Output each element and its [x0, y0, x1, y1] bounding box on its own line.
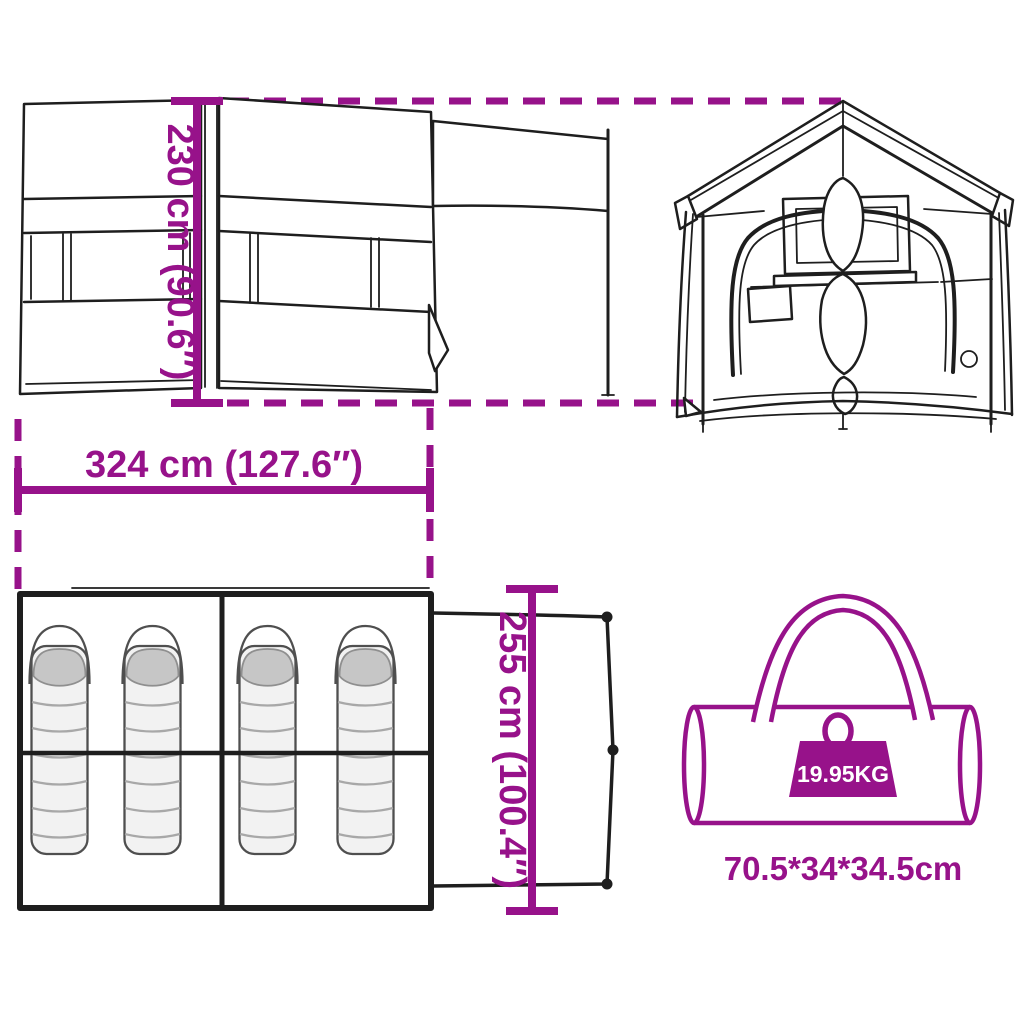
package-size-label: 70.5*34*34.5cm [724, 850, 963, 887]
height-dimension: 230 cm (90.6″) [159, 101, 223, 403]
weight-icon: 19.95KG [789, 715, 897, 797]
sleeping-bag-4 [336, 626, 396, 854]
stake-dot [608, 745, 619, 756]
interior-pocket [748, 286, 792, 322]
depth-dimension: 255 cm (100.4″) [491, 589, 558, 911]
carry-bag-icon: 19.95KG 70.5*34*34.5cm [684, 596, 980, 887]
tent-dimension-diagram: 230 cm (90.6″) 324 cm (127.6″) 255 cm (1… [0, 0, 1024, 1024]
product-diagram-canvas: 230 cm (90.6″) 324 cm (127.6″) 255 cm (1… [0, 0, 1024, 1024]
height-dimension-label: 230 cm (90.6″) [159, 124, 201, 381]
width-dimension-label: 324 cm (127.6″) [85, 444, 363, 486]
rolled-door-curtain [820, 178, 866, 414]
bag-handle [753, 596, 933, 722]
side-door-flap [429, 305, 448, 371]
sleeping-bag-1 [30, 626, 90, 854]
weight-badge-label: 19.95KG [797, 761, 889, 787]
stake-dot [602, 879, 613, 890]
depth-dimension-label: 255 cm (100.4″) [491, 611, 533, 889]
sleeping-bag-2 [123, 626, 183, 854]
side-canopy [433, 121, 608, 211]
stake-dot [602, 612, 613, 623]
tent-side-view-icon [20, 98, 614, 395]
sleeping-bag-3 [238, 626, 298, 854]
width-dimension: 324 cm (127.6″) [18, 444, 430, 512]
tent-front-view-icon [675, 101, 1013, 432]
cable-port [961, 351, 977, 367]
